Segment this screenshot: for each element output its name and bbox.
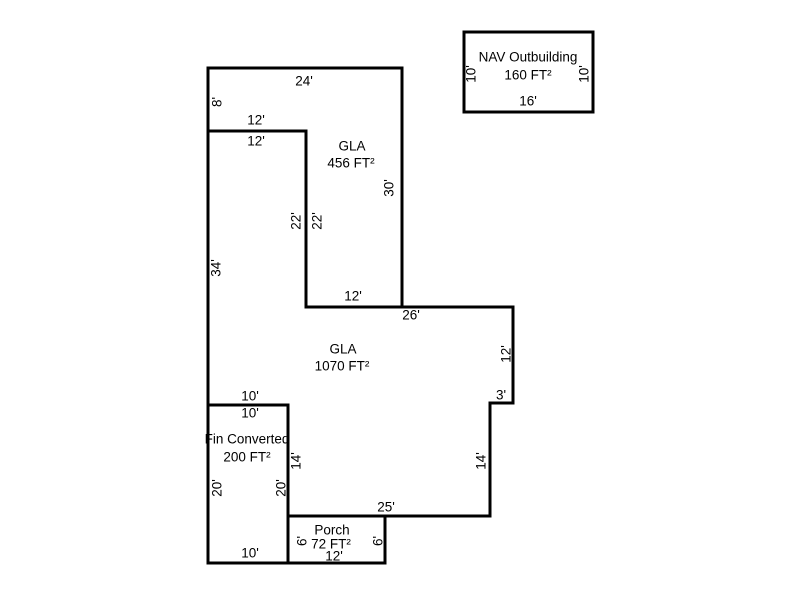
dimension-label: 12' bbox=[247, 134, 265, 149]
dimension-label: 6' bbox=[295, 536, 310, 546]
dimension-label: 10' bbox=[241, 389, 259, 404]
area-label-outbuilding-line1: NAV Outbuilding bbox=[479, 50, 578, 65]
area-label-fin-converted-line2: 200 FT² bbox=[223, 450, 271, 465]
sketch-background bbox=[0, 0, 800, 600]
dimension-label: 14' bbox=[474, 452, 489, 470]
area-label-gla-main-line1: GLA bbox=[329, 342, 356, 357]
floor-plan-page: GLA456 FT²GLA1070 FT²Fin Converted200 FT… bbox=[0, 0, 800, 600]
dimension-label: 8' bbox=[210, 97, 225, 107]
dimension-label: 10' bbox=[577, 65, 592, 83]
dimension-label: 12' bbox=[344, 289, 362, 304]
dimension-label: 12' bbox=[325, 549, 343, 564]
dimension-label: 20' bbox=[210, 479, 225, 497]
area-label-gla-main-line2: 1070 FT² bbox=[315, 359, 370, 374]
floor-plan-sketch: GLA456 FT²GLA1070 FT²Fin Converted200 FT… bbox=[0, 0, 800, 600]
area-label-fin-converted-line1: Fin Converted bbox=[205, 432, 290, 447]
dimension-label: 10' bbox=[464, 65, 479, 83]
dimension-label: 16' bbox=[519, 94, 537, 109]
dimension-label: 22' bbox=[289, 212, 304, 230]
dimension-label: 10' bbox=[241, 546, 259, 561]
dimension-label: 12' bbox=[499, 345, 514, 363]
dimension-label: 24' bbox=[295, 74, 313, 89]
dimension-label: 6' bbox=[371, 536, 386, 546]
dimension-label: 25' bbox=[377, 500, 395, 515]
area-label-porch-line1: Porch bbox=[314, 523, 349, 538]
dimension-label: 20' bbox=[274, 479, 289, 497]
dimension-label: 30' bbox=[382, 179, 397, 197]
dimension-label: 22' bbox=[310, 212, 325, 230]
dimension-label: 3' bbox=[496, 388, 506, 403]
dimension-label: 26' bbox=[402, 308, 420, 323]
dimension-label: 34' bbox=[209, 259, 224, 277]
dimension-label: 12' bbox=[247, 113, 265, 128]
area-label-outbuilding-line2: 160 FT² bbox=[504, 68, 552, 83]
dimension-label: 14' bbox=[289, 452, 304, 470]
area-label-gla-upper-line1: GLA bbox=[338, 139, 365, 154]
dimension-label: 10' bbox=[241, 406, 259, 421]
area-label-gla-upper-line2: 456 FT² bbox=[327, 156, 375, 171]
